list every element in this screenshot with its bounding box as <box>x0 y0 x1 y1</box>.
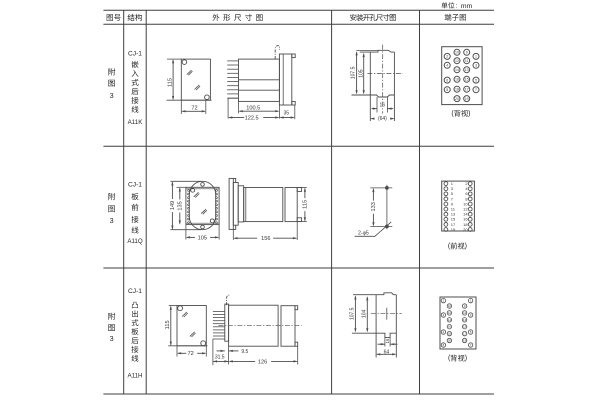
svg-text:115: 115 <box>303 200 309 209</box>
svg-text:3: 3 <box>110 334 114 343</box>
svg-text:156: 156 <box>261 236 270 242</box>
svg-text:19: 19 <box>463 339 467 343</box>
svg-text:11: 11 <box>463 311 466 315</box>
svg-text:13: 13 <box>463 318 467 322</box>
svg-text:107.5: 107.5 <box>351 66 357 79</box>
svg-text:20: 20 <box>448 339 452 343</box>
svg-text:): ) <box>465 355 467 362</box>
svg-text:3: 3 <box>110 91 114 100</box>
svg-text:115: 115 <box>165 320 171 329</box>
svg-text:14: 14 <box>448 318 452 322</box>
svg-text:19: 19 <box>451 227 456 232</box>
svg-text:mm: mm <box>461 3 473 10</box>
svg-text:122.5: 122.5 <box>245 115 259 121</box>
svg-text:6: 6 <box>446 78 448 82</box>
svg-text:3: 3 <box>110 216 114 225</box>
svg-text:7: 7 <box>475 88 477 92</box>
svg-text:A11K: A11K <box>128 119 144 126</box>
svg-text:(64): (64) <box>378 116 387 122</box>
svg-text:64: 64 <box>384 350 390 356</box>
svg-text:14: 14 <box>455 68 459 72</box>
svg-text:72: 72 <box>191 106 197 112</box>
svg-text:31.5: 31.5 <box>215 355 225 361</box>
svg-text:107.5: 107.5 <box>350 307 356 320</box>
svg-text:9.5: 9.5 <box>241 349 248 355</box>
svg-text:): ) <box>465 243 467 250</box>
svg-text:16: 16 <box>448 325 452 329</box>
svg-text:10: 10 <box>455 51 459 55</box>
svg-text:CJ-1: CJ-1 <box>128 51 142 58</box>
svg-text:3: 3 <box>475 64 477 68</box>
svg-text:18: 18 <box>455 87 459 91</box>
svg-text:CJ-1: CJ-1 <box>128 288 142 295</box>
svg-text:105: 105 <box>358 69 364 78</box>
svg-text:126: 126 <box>258 359 267 365</box>
svg-text:135: 135 <box>177 201 183 210</box>
svg-text:11: 11 <box>465 59 469 63</box>
svg-text:CJ-1: CJ-1 <box>128 182 142 189</box>
svg-text:4: 4 <box>446 64 448 68</box>
svg-text:16: 16 <box>380 102 386 108</box>
svg-text:10: 10 <box>448 304 452 308</box>
svg-text:9: 9 <box>466 51 468 55</box>
svg-text:8: 8 <box>446 88 448 92</box>
svg-text:35: 35 <box>284 110 290 116</box>
svg-text:12: 12 <box>455 59 459 63</box>
svg-text:2-φ5: 2-φ5 <box>358 231 369 237</box>
svg-text:): ) <box>468 110 470 117</box>
svg-text:17: 17 <box>465 87 469 91</box>
svg-text:105: 105 <box>198 235 207 241</box>
svg-text:A11H: A11H <box>127 373 142 380</box>
svg-text:72: 72 <box>187 351 193 357</box>
svg-text:16: 16 <box>455 78 459 82</box>
svg-text:100.5: 100.5 <box>246 105 260 111</box>
svg-text:A11Q: A11Q <box>127 238 143 245</box>
svg-text:19: 19 <box>465 97 469 101</box>
svg-text:104: 104 <box>362 309 368 318</box>
svg-text:133: 133 <box>371 202 377 211</box>
svg-text:15: 15 <box>465 78 469 82</box>
svg-text:12: 12 <box>448 311 452 315</box>
svg-text:20: 20 <box>463 227 468 232</box>
svg-text:18: 18 <box>448 332 452 336</box>
svg-text:2: 2 <box>446 55 448 59</box>
svg-text:149: 149 <box>170 201 176 210</box>
svg-text:16: 16 <box>385 338 390 343</box>
svg-text:1: 1 <box>475 55 477 59</box>
svg-text::: : <box>455 3 457 10</box>
svg-text:13: 13 <box>465 68 469 72</box>
svg-text:15: 15 <box>463 325 467 329</box>
svg-text:115: 115 <box>167 78 173 87</box>
svg-text:20: 20 <box>455 97 459 101</box>
svg-text:17: 17 <box>463 332 467 336</box>
svg-text:5: 5 <box>475 78 477 82</box>
